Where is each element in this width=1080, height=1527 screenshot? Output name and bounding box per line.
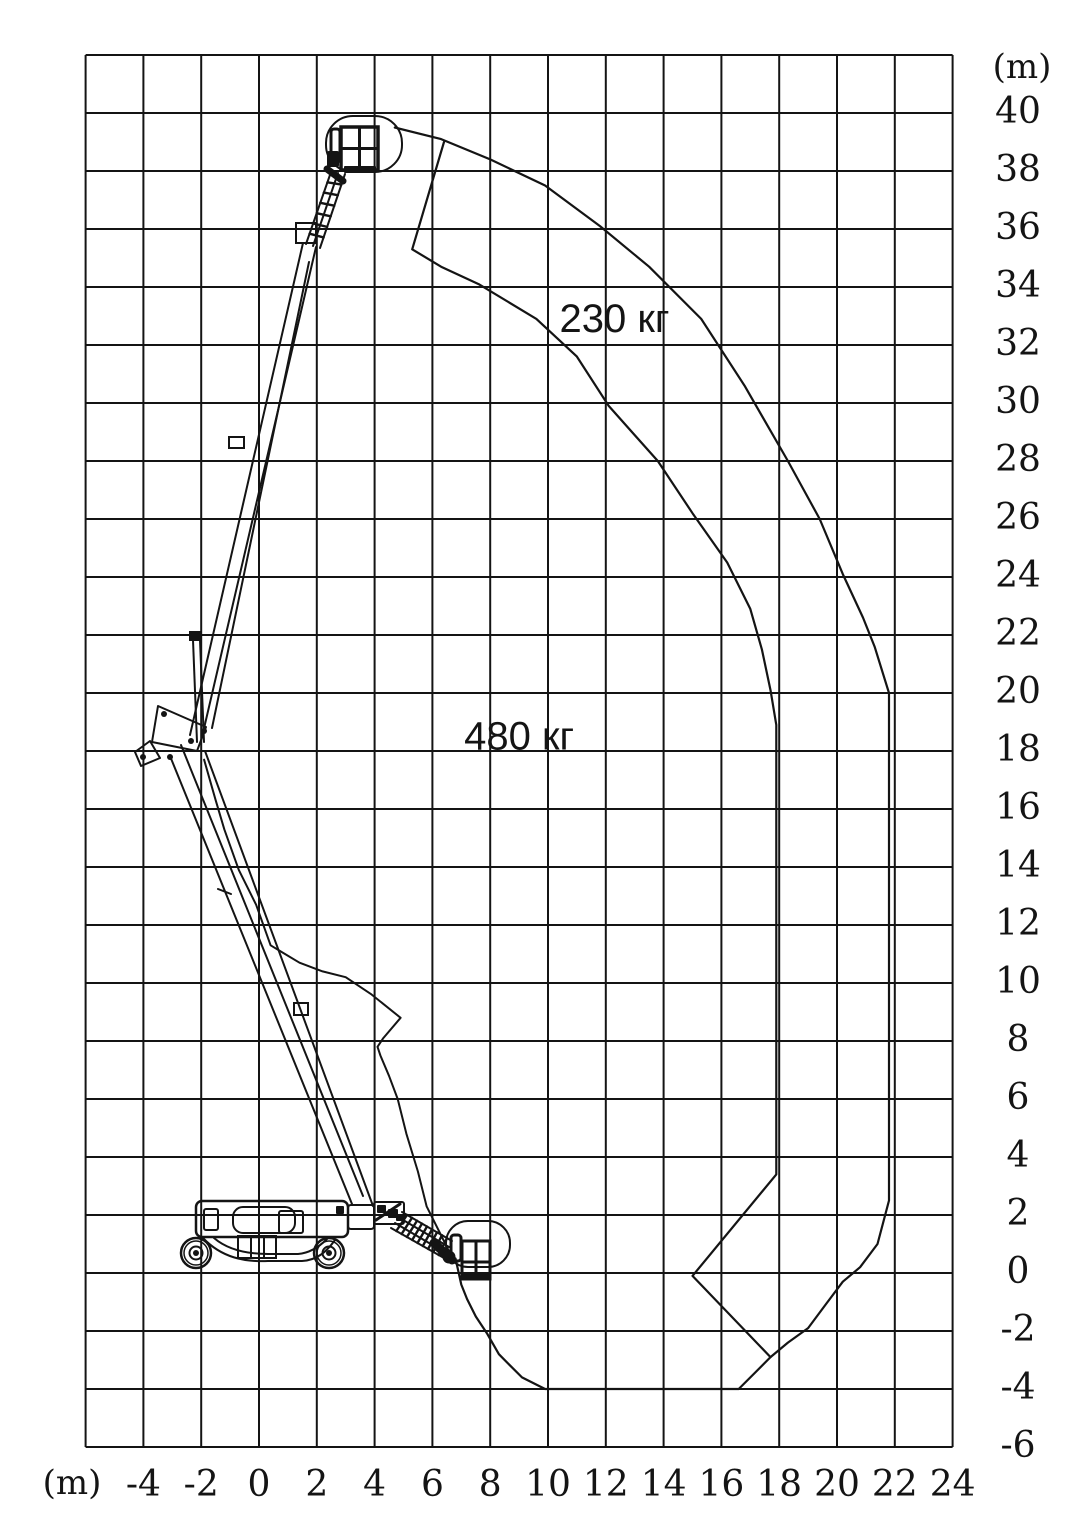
y-tick-label: 20 — [995, 671, 1041, 712]
x-tick-label: 16 — [698, 1464, 744, 1505]
x-tick-label: -4 — [126, 1464, 161, 1505]
boom-lift-load-chart: 4038363432302826242220181614121086420-2-… — [0, 0, 1080, 1527]
machine-shape — [327, 151, 339, 167]
x-tick-label: 6 — [421, 1464, 444, 1505]
platform-ground — [446, 1221, 510, 1280]
x-tick-label: 8 — [479, 1464, 502, 1505]
zone-label-230kg: 230 кг — [559, 297, 669, 341]
machine-shape — [326, 1250, 332, 1256]
boom-pivot — [374, 1202, 404, 1224]
y-tick-label: 22 — [995, 613, 1041, 654]
machine-shape — [377, 1205, 386, 1213]
wheel-left — [181, 1238, 211, 1268]
jib — [296, 172, 345, 248]
machine-shape — [188, 738, 194, 744]
y-tick-label: 0 — [1007, 1251, 1030, 1292]
y-tick-label: 2 — [1007, 1193, 1030, 1234]
y-tick-label: 4 — [1007, 1135, 1030, 1176]
x-tick-label: 18 — [756, 1464, 802, 1505]
machine-shape — [451, 1235, 461, 1261]
y-tick-label: 40 — [995, 91, 1041, 132]
y-tick-label: 8 — [1007, 1019, 1030, 1060]
y-tick-label: 18 — [995, 729, 1041, 770]
y-tick-label: 30 — [995, 381, 1041, 422]
x-tick-label: 0 — [248, 1464, 271, 1505]
working-envelope-diagram: 4038363432302826242220181614121086420-2-… — [0, 0, 1080, 1527]
machine-shape — [189, 631, 202, 641]
x-tick-label: 20 — [814, 1464, 860, 1505]
machine-line — [170, 756, 352, 1204]
machine-line — [193, 640, 197, 742]
y-axis-unit-label: (m) — [993, 47, 1052, 87]
machine-side-boundary — [204, 760, 450, 1253]
machine-line — [181, 745, 363, 1196]
x-tick-label: 22 — [872, 1464, 918, 1505]
y-tick-label: 6 — [1007, 1077, 1030, 1118]
x-tick-label: 10 — [525, 1464, 571, 1505]
x-axis-unit-label: (m) — [43, 1463, 102, 1503]
machine-shape — [201, 728, 207, 734]
machine-shape — [193, 1250, 199, 1256]
x-tick-label: 24 — [930, 1464, 976, 1505]
y-axis-tick-labels: 4038363432302826242220181614121086420-2-… — [995, 91, 1041, 1466]
machine-shape — [336, 1206, 344, 1214]
y-tick-label: 36 — [995, 207, 1041, 248]
machine-shape — [140, 754, 146, 760]
y-tick-label: 16 — [995, 787, 1041, 828]
x-axis-tick-labels: -4-2024681012141618202224 — [126, 1464, 976, 1505]
machine-line — [152, 706, 206, 751]
machine-line — [212, 262, 309, 728]
machine-line — [135, 741, 160, 766]
machine-line — [324, 193, 338, 196]
y-tick-label: 24 — [995, 555, 1041, 596]
y-tick-label: -6 — [1000, 1425, 1035, 1466]
chassis — [196, 1201, 374, 1261]
machine-shape — [344, 166, 376, 173]
machine-shape — [348, 1205, 374, 1229]
wheel-right — [314, 1238, 344, 1268]
y-tick-label: -4 — [1000, 1367, 1035, 1408]
machine-line — [214, 1238, 327, 1254]
machine-shape — [462, 1274, 490, 1280]
x-tick-label: 12 — [583, 1464, 629, 1505]
x-tick-label: 14 — [641, 1464, 687, 1505]
x-tick-label: 4 — [363, 1464, 386, 1505]
y-tick-label: 10 — [995, 961, 1041, 1002]
machine-line — [327, 182, 341, 184]
telescopic-boom — [189, 243, 316, 742]
machine-shape — [204, 1209, 218, 1230]
y-tick-label: 26 — [995, 497, 1041, 538]
y-tick-label: 38 — [995, 149, 1041, 190]
x-tick-label: 2 — [305, 1464, 328, 1505]
y-tick-label: -2 — [1000, 1309, 1035, 1350]
machine-shape — [229, 437, 244, 448]
boom-lift-drawing — [135, 116, 510, 1280]
machine-line — [317, 213, 331, 216]
y-tick-label: 34 — [995, 265, 1041, 306]
y-tick-label: 12 — [995, 903, 1041, 944]
y-tick-label: 28 — [995, 439, 1041, 480]
machine-shape — [161, 711, 167, 717]
x-tick-label: -2 — [184, 1464, 219, 1505]
machine-line — [190, 243, 303, 735]
machine-line — [320, 203, 334, 206]
y-tick-label: 14 — [995, 845, 1041, 886]
zone-label-480kg: 480 кг — [464, 715, 574, 759]
y-tick-label: 32 — [995, 323, 1041, 364]
